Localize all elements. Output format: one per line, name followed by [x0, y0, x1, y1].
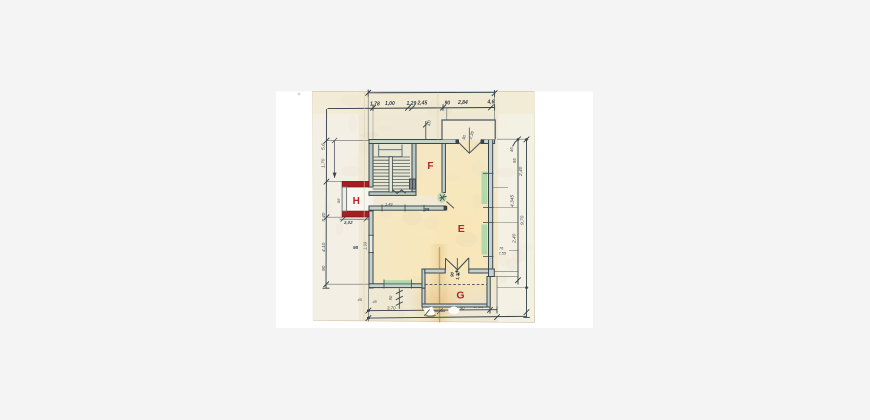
svg-text:90: 90 — [445, 100, 451, 106]
svg-text:E: E — [458, 223, 465, 235]
svg-text:45: 45 — [358, 297, 363, 302]
svg-text:7,40: 7,40 — [321, 212, 327, 222]
svg-text:9,70: 9,70 — [520, 215, 526, 225]
svg-text:98: 98 — [425, 207, 430, 212]
svg-text:3,70: 3,70 — [387, 306, 396, 311]
svg-text:1,99: 1,99 — [363, 241, 368, 250]
svg-text:46: 46 — [509, 147, 514, 152]
svg-text:2,45: 2,45 — [417, 101, 428, 107]
svg-text:5,6: 5,6 — [320, 143, 326, 150]
svg-text:95: 95 — [512, 158, 517, 163]
svg-text:2,40: 2,40 — [518, 166, 524, 177]
svg-text:1,78: 1,78 — [370, 101, 380, 107]
svg-text:2,84: 2,84 — [457, 100, 468, 106]
svg-text:1,29: 1,29 — [407, 101, 417, 107]
svg-text:1,00: 1,00 — [385, 101, 395, 107]
svg-text:2,02: 2,02 — [343, 220, 353, 225]
svg-text:H: H — [353, 196, 360, 207]
svg-text:86: 86 — [336, 198, 341, 203]
svg-text:F: F — [427, 161, 433, 172]
svg-text:4,10: 4,10 — [321, 242, 327, 252]
svg-text:G: G — [456, 289, 464, 301]
svg-text:2,40: 2,40 — [511, 233, 517, 244]
svg-text:98: 98 — [353, 245, 359, 250]
svg-text:4,345: 4,345 — [510, 195, 516, 207]
svg-text:4,0: 4,0 — [427, 120, 432, 126]
svg-text:90: 90 — [321, 265, 327, 271]
svg-text:1,49: 1,49 — [385, 202, 393, 207]
svg-text:4,6: 4,6 — [487, 100, 495, 106]
svg-text:7,55: 7,55 — [499, 251, 507, 256]
svg-text:1,70: 1,70 — [321, 158, 327, 168]
